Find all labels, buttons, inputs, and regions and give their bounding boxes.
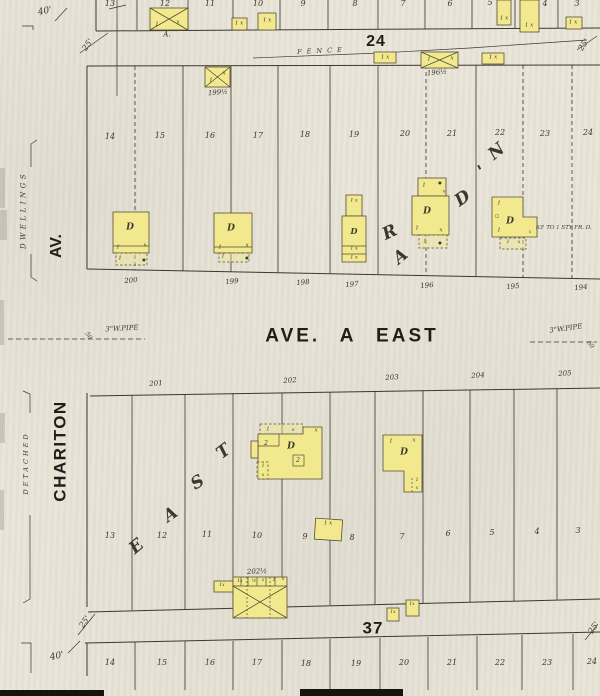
address-number: 195 (506, 283, 520, 291)
lot-number: 20 (400, 130, 410, 138)
lot-number: 4 (534, 528, 539, 536)
building-mark: x (439, 228, 442, 234)
building-mark: D (227, 225, 235, 234)
building-mark: x (176, 20, 179, 26)
building-mark: 1 (155, 22, 159, 28)
building-mark: 1 x (235, 21, 243, 27)
lot-number: 13 (105, 532, 115, 540)
lot-number: 23 (542, 659, 552, 667)
lot-number: 15 (155, 132, 165, 140)
building-mark: D (287, 443, 295, 452)
lot-number: 11 (202, 531, 212, 539)
sanborn-fire-insurance-map: 1312111098765431415161718192021222324131… (0, 0, 600, 696)
script-letter: R (380, 222, 400, 243)
building-mark: 1 (497, 228, 501, 234)
lot-number: 16 (205, 132, 215, 140)
lot-number: 24 (587, 658, 597, 666)
building-mark: 1 x (263, 18, 271, 24)
script-letter: N (486, 140, 509, 163)
building-mark: 1x (409, 603, 414, 608)
lot-number: 4 (542, 0, 547, 8)
building-mark: 1 x (381, 55, 389, 61)
building-mark: 1 (221, 254, 225, 260)
building-mark: 1 (427, 57, 431, 63)
building-mark: 2 (264, 441, 268, 447)
address-number: 203 (385, 374, 399, 382)
building-mark: 1 (262, 465, 265, 470)
lot-number: 16 (205, 659, 215, 667)
building-mark: x (282, 578, 285, 583)
building-mark: 1 (273, 579, 276, 584)
building-mark: 1 (209, 78, 213, 84)
dimension-label: 50 (83, 331, 92, 341)
lot-number: 5 (489, 529, 494, 537)
block-number-24: 24 (366, 34, 386, 50)
building-mark: 1 (507, 241, 510, 246)
lot-number: 13 (105, 0, 115, 8)
building-mark: 1 x (350, 256, 358, 261)
building-mark: 1 (218, 245, 222, 251)
building-mark: x (314, 428, 317, 434)
lot-number: 24 (583, 129, 593, 137)
building-mark: 1 (497, 201, 501, 207)
address-number: 194 (574, 284, 588, 292)
address-number: 202 (283, 377, 297, 385)
lot-number: 14 (105, 659, 115, 667)
building-mark: 1 x (500, 16, 508, 22)
building-mark: ● (438, 241, 442, 245)
lot-number: 12 (157, 532, 167, 540)
building-mark: x (262, 579, 265, 584)
building-mark: D (351, 227, 358, 235)
address-number: 198 (296, 279, 310, 287)
map-labels-layer: 1312111098765431415161718192021222324131… (0, 0, 600, 696)
building-mark: x (412, 438, 415, 444)
building-mark: D (506, 218, 514, 227)
building-mark: x (222, 71, 225, 77)
lot-number: 7 (400, 0, 405, 8)
lot-number: 10 (252, 532, 262, 540)
building-mark: 1 (423, 239, 427, 245)
lot-number: 8 (349, 534, 354, 542)
building-address: A. (163, 32, 170, 39)
building-mark: ○ (495, 215, 499, 220)
building-mark: x (443, 190, 446, 195)
dimension-label: 25' (577, 38, 591, 53)
building-mark: ● (142, 258, 146, 262)
lot-number: 22 (495, 659, 505, 667)
script-letter: D (452, 188, 474, 210)
lot-number: 17 (252, 659, 262, 667)
script-letter: ' (475, 163, 488, 180)
margin-label-detached: DETACHED (23, 431, 30, 494)
lot-number: 3 (575, 527, 580, 535)
lot-number: 7 (399, 533, 404, 541)
address-number: 199 (225, 278, 239, 286)
script-letter: S (188, 473, 207, 494)
building-mark: 1 (116, 245, 120, 251)
street-label-chariton: CHARITON (52, 400, 69, 501)
building-mark: x (245, 243, 248, 249)
lot-number: 22 (495, 129, 505, 137)
address-number: 197 (345, 281, 359, 289)
dimension-label: 60 (585, 340, 594, 350)
script-letter: A (161, 504, 182, 525)
lot-number: 3 (574, 0, 579, 8)
street-label-av: AV. (49, 234, 65, 258)
building-mark: ● (438, 181, 442, 185)
dimension-label: 25' (587, 621, 600, 636)
lot-number: 19 (351, 660, 361, 668)
lot-number: 20 (399, 659, 409, 667)
building-mark: 1 x (350, 199, 358, 204)
building-mark: 1 (266, 427, 270, 433)
address-number: 196 (420, 282, 434, 290)
building-address: 202½ (247, 568, 267, 576)
street-label-ave-a-east: AVE. A EAST (265, 327, 438, 346)
lot-number: 6 (445, 530, 450, 538)
building-mark: 1 (422, 183, 426, 189)
lot-number: 21 (447, 130, 457, 138)
building-mark: 1x (237, 580, 242, 585)
building-mark: ½ (252, 580, 256, 585)
building-mark: x (450, 56, 453, 62)
dimension-label: 40' (37, 6, 53, 18)
note-63ft-to-dwelling: 63' TO 1 STY FR. D. (536, 226, 592, 232)
building-mark: x (416, 487, 419, 492)
lot-number: 9 (300, 0, 305, 8)
lot-number: 18 (301, 660, 311, 668)
address-number: 205 (558, 370, 572, 378)
lot-number: 19 (349, 131, 359, 139)
lot-number: 6 (447, 0, 452, 8)
building-mark: x (518, 241, 521, 246)
lot-number: 17 (253, 132, 263, 140)
building-mark: 1 x (569, 20, 577, 26)
building-mark: o (292, 429, 295, 434)
building-mark: 1 (118, 256, 122, 262)
building-mark: x (143, 243, 146, 249)
building-mark: 2 (296, 458, 300, 464)
lot-number: 18 (300, 131, 310, 139)
dimension-label: 25' (81, 38, 95, 53)
script-letter: T (214, 441, 234, 462)
lot-number: 15 (157, 659, 167, 667)
building-mark: 1x (390, 611, 395, 616)
building-mark: 1 x (324, 521, 332, 527)
lot-number: 8 (352, 0, 357, 8)
building-mark: 1 (389, 439, 393, 445)
address-number: 204 (471, 372, 485, 380)
building-mark: 1x (219, 584, 224, 589)
block-number-37: 37 (363, 620, 384, 637)
building-mark: D (126, 224, 134, 233)
building-mark: 1 x (489, 55, 497, 61)
building-mark: D (400, 449, 408, 458)
dimension-label: 25' (78, 615, 92, 630)
lot-number: 21 (447, 659, 457, 667)
address-number: 201 (149, 380, 163, 388)
building-mark: 1 (416, 479, 419, 484)
building-address: 196½ (427, 69, 448, 78)
lot-number: 11 (205, 0, 215, 8)
lot-number: 10 (253, 0, 263, 8)
address-number: 200 (124, 277, 138, 285)
dimension-label: 40' (49, 651, 65, 663)
building-mark: 1 (415, 226, 419, 232)
script-letter: A (390, 246, 411, 268)
lot-number: 12 (160, 0, 170, 8)
margin-label-dwellings: DWELLINGS (21, 171, 28, 249)
script-letter: E (127, 536, 148, 557)
building-mark: ● (245, 256, 249, 260)
building-mark: x (529, 231, 532, 236)
building-mark: 1 x (525, 23, 533, 29)
building-mark: 1 x (350, 247, 358, 252)
building-mark: D (423, 208, 431, 217)
lot-number: 5 (487, 0, 492, 7)
lot-number: 14 (105, 133, 115, 141)
lot-number: 23 (540, 130, 550, 138)
lot-number: 9 (302, 533, 307, 541)
building-address: 199½ (208, 89, 229, 98)
building-mark: x (262, 474, 265, 479)
